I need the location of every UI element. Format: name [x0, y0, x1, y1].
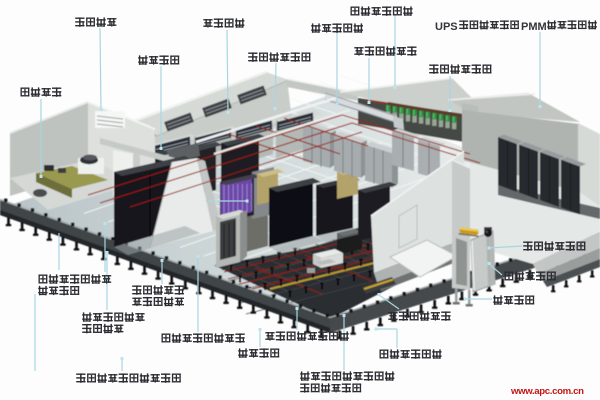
svg-text:UPS: UPS: [435, 21, 458, 33]
svg-text:PMM: PMM: [521, 21, 547, 33]
svg-text:www.apc.com.cn: www.apc.com.cn: [510, 386, 584, 397]
